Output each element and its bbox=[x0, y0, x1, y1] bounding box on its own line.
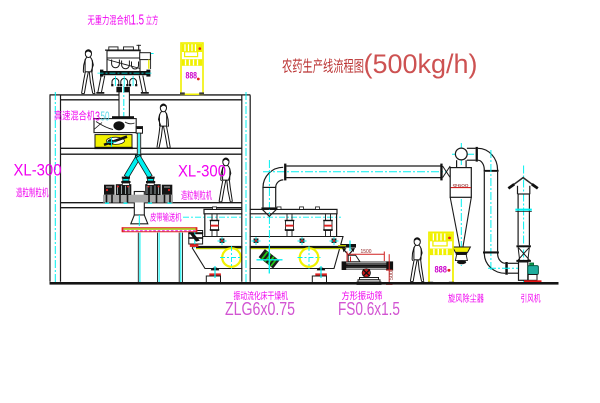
svg-text:(500kg/h): (500kg/h) bbox=[364, 49, 478, 79]
svg-text:888: 888 bbox=[434, 264, 447, 275]
svg-text:888: 888 bbox=[186, 71, 198, 81]
svg-text:1500: 1500 bbox=[361, 249, 372, 255]
svg-text:XL-300: XL-300 bbox=[14, 161, 62, 180]
svg-text:3: 3 bbox=[95, 110, 100, 124]
svg-text:ZLG6x0.75: ZLG6x0.75 bbox=[225, 299, 295, 319]
svg-text:50: 50 bbox=[101, 110, 110, 124]
svg-text:FS0.6x1.5: FS0.6x1.5 bbox=[338, 299, 400, 319]
svg-text:1.5: 1.5 bbox=[131, 13, 145, 29]
svg-text:Φ600: Φ600 bbox=[453, 183, 469, 189]
svg-text:XL-300: XL-300 bbox=[178, 162, 226, 181]
svg-text:500: 500 bbox=[389, 271, 395, 280]
